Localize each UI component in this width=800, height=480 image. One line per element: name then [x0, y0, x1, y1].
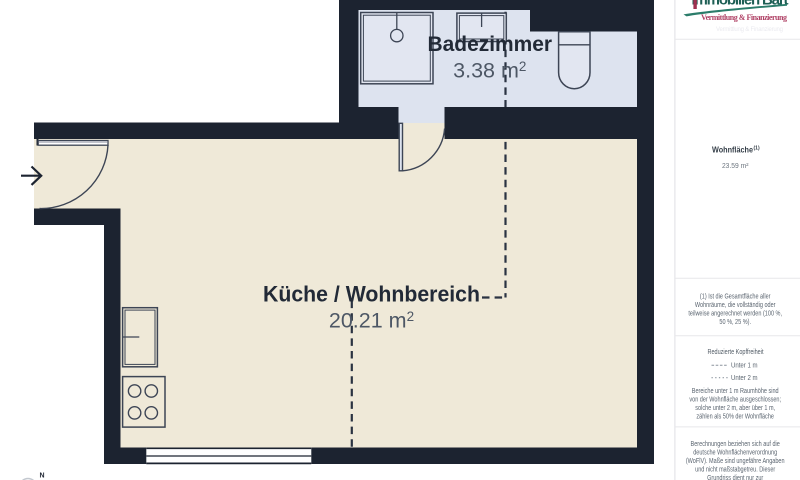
svg-text:Wohnfläche: Wohnfläche — [712, 145, 754, 154]
svg-text:Unter 1 m: Unter 1 m — [731, 362, 758, 369]
svg-text:Reduzierte Kopffreiheit: Reduzierte Kopffreiheit — [707, 349, 763, 357]
svg-text:23.59 m²: 23.59 m² — [722, 161, 749, 170]
svg-text:Berechnungen beziehen sich auf: Berechnungen beziehen sich auf die — [691, 440, 781, 448]
svg-text:teilweise angerechnet werden (: teilweise angerechnet werden (100 %, — [688, 310, 782, 318]
svg-text:20.21 m2: 20.21 m2 — [329, 309, 414, 333]
svg-text:Bereiche unter 1 m Raumhöhe si: Bereiche unter 1 m Raumhöhe sind — [692, 387, 779, 395]
svg-text:solche unter 2 m, aber über 1: solche unter 2 m, aber über 1 m, — [695, 404, 775, 412]
svg-text:Unter 2 m: Unter 2 m — [731, 375, 758, 382]
svg-text:und nicht maßstabgetreu. Diese: und nicht maßstabgetreu. Dieser — [695, 466, 775, 474]
svg-text:Grundriss dient nur zur: Grundriss dient nur zur — [707, 474, 763, 480]
svg-text:deutsche Wohnflächenverordnung: deutsche Wohnflächenverordnung — [693, 449, 777, 457]
svg-text:50 %, 25 %).: 50 %, 25 %). — [719, 318, 751, 326]
svg-text:(1) Ist die Gesamtfläche aller: (1) Ist die Gesamtfläche aller — [700, 293, 771, 301]
svg-text:zählen als 50% der Wohnfläche: zählen als 50% der Wohnfläche — [696, 413, 774, 421]
svg-text:(1): (1) — [754, 145, 760, 151]
svg-text:Vermittlung & Finanzierung: Vermittlung & Finanzierung — [716, 27, 783, 33]
svg-text:(WoFlV). Maße sind ungefähre A: (WoFlV). Maße sind ungefähre Angaben — [686, 458, 785, 466]
svg-text:Immobilien Bart: Immobilien Bart — [692, 0, 789, 9]
svg-text:Küche / Wohnbereich: Küche / Wohnbereich — [263, 282, 480, 307]
svg-text:Badezimmer: Badezimmer — [428, 32, 553, 56]
svg-text:3.38 m2: 3.38 m2 — [453, 59, 526, 83]
svg-text:Wohnräume, die vollständig ode: Wohnräume, die vollständig oder — [695, 301, 776, 309]
svg-text:N: N — [40, 473, 45, 480]
svg-text:von der Wohnfläche ausgeschlos: von der Wohnfläche ausgeschlossen; — [689, 396, 781, 404]
svg-text:Vermittlung & Finanzierung: Vermittlung & Finanzierung — [701, 13, 787, 22]
